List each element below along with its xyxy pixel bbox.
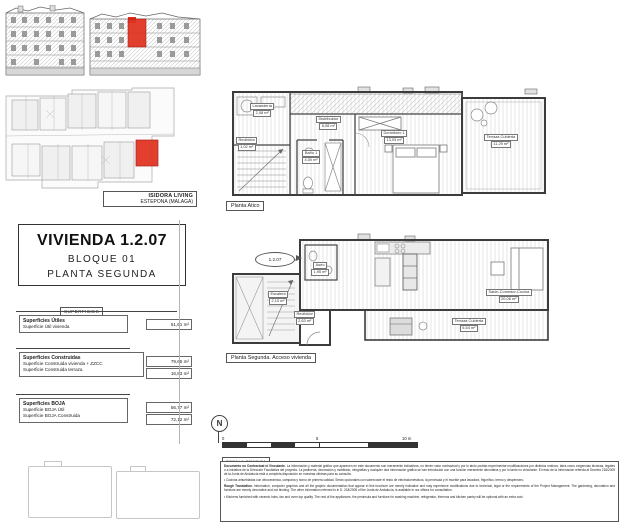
room-label-recibidor-atico: Recibidor 1,02 m² xyxy=(236,137,257,151)
room-area: 6,08 m² xyxy=(319,123,337,130)
room-name: Escalera xyxy=(268,291,288,298)
surfaces-group-construidas: Superficies Construidas Superficie Const… xyxy=(19,352,144,377)
room-area: 4,00 m² xyxy=(302,157,320,164)
room-area: 1,02 m² xyxy=(238,144,256,151)
room-name: Dormitorio 1 xyxy=(381,130,407,137)
divider xyxy=(16,394,130,395)
plan-segunda-drawing xyxy=(225,228,617,350)
value-util-vivienda: 51,61 m² xyxy=(146,319,192,330)
surfaces-group-boja: Superficies BOJA Superficie BOJA Útil Su… xyxy=(19,398,128,423)
room-name: Terraza Cubierta xyxy=(484,134,518,141)
value-boja-construida: 72,12 m² xyxy=(146,414,192,425)
room-area: 11,29 m² xyxy=(491,141,511,148)
project-label: ISIDORA LIVING ESTEPONA (MALAGA) xyxy=(103,191,197,207)
plan-sheet: ISIDORA LIVING ESTEPONA (MALAGA) VIVIEND… xyxy=(0,0,632,528)
key-plan-drawing xyxy=(2,86,202,196)
room-name: Recibidor xyxy=(294,311,315,318)
title-block: VIVIENDA 1.2.07 BLOQUE 01 PLANTA SEGUNDA xyxy=(18,224,186,286)
room-name: Distribuidor xyxy=(316,116,341,123)
block-title: BLOQUE 01 xyxy=(19,254,185,265)
unit-entry-marker: 1.2.07 xyxy=(255,252,295,267)
room-area: 1,95 m² xyxy=(311,269,329,276)
room-label-terraza-atico: Terraza Cubierta 11,29 m² xyxy=(484,134,518,148)
scale-tick-5: 5 xyxy=(316,436,318,441)
surfaces-group-utiles: Superficies Útiles Superficie Útil vivie… xyxy=(19,315,128,333)
room-label-terraza-segunda: Terraza Cubierta 5,54 m² xyxy=(452,318,486,332)
legal-es-bullet: • Cocinas amuebladas con vitrocerámica, … xyxy=(224,478,615,482)
facade-b xyxy=(90,13,200,75)
room-area: 2,63 m² xyxy=(296,318,314,325)
room-label-lavanderia: Lavandería 2,08 m² xyxy=(250,103,274,117)
building-elevations-drawing xyxy=(4,5,202,85)
room-label-bano1: Baño 1 4,00 m² xyxy=(302,150,320,164)
caption-planta-segunda: Planta Segunda. Acceso vivienda xyxy=(226,353,316,363)
value-construida-vivienda: 79,65 m² xyxy=(146,356,192,367)
room-label-recibidor-segunda: Recibidor 2,63 m² xyxy=(294,311,315,325)
room-label-salon: Salón-Comedor-Cocina 20,06 m² xyxy=(486,289,532,303)
scale-tick-10: 10 m xyxy=(402,436,411,441)
north-arrow-icon: N xyxy=(211,415,228,432)
row-label: Superficie BOJA Construida xyxy=(23,413,124,419)
room-area: 2,10 m² xyxy=(269,298,287,305)
row-label: Superficie Útil vivienda xyxy=(23,324,124,330)
room-area: 13,03 m² xyxy=(384,137,404,144)
value-construida-terraza: 16,83 m² xyxy=(146,368,192,379)
legal-es: Documento no Contractual ni Vinculante. … xyxy=(224,464,615,476)
room-label-distribuidor: Distribuidor 6,08 m² xyxy=(316,116,341,130)
legal-en: Rough Translation. Information, computer… xyxy=(224,484,615,492)
room-name: Recibidor xyxy=(236,137,257,144)
room-label-escalera: Escalera 2,10 m² xyxy=(268,291,288,305)
north-arrow-stem xyxy=(218,431,219,443)
caption-planta-atico: Planta Atico xyxy=(226,201,264,211)
floor-title: PLANTA SEGUNDA xyxy=(19,269,185,280)
room-name: Salón-Comedor-Cocina xyxy=(486,289,532,296)
room-name: Aseo xyxy=(313,262,327,269)
divider xyxy=(16,348,130,349)
legal-en-text: Information, computer graphics and all t… xyxy=(224,484,615,492)
room-name: Terraza Cubierta xyxy=(452,318,486,325)
room-name: Baño 1 xyxy=(302,150,319,157)
highlighted-unit-elevation xyxy=(128,19,146,47)
project-location: ESTEPONA (MALAGA) xyxy=(107,199,193,205)
room-label-aseo: Aseo 1,95 m² xyxy=(311,262,329,276)
stair-annex xyxy=(233,274,300,343)
value-boja-util: 56,77 m² xyxy=(146,402,192,413)
room-label-dormitorio1: Dormitorio 1 13,03 m² xyxy=(381,130,407,144)
scale-tick-0: 0 xyxy=(222,436,224,441)
thumbnail-drawing-1 xyxy=(28,466,112,518)
scale-bar-segments xyxy=(222,442,418,448)
divider xyxy=(16,311,177,312)
room-area: 5,54 m² xyxy=(460,325,478,332)
room-name: Lavandería xyxy=(250,103,274,110)
legal-en-bullet: • Kitchens furnished with ceramic hobs, … xyxy=(224,495,615,499)
column-divider xyxy=(179,220,180,444)
room-area: 20,06 m² xyxy=(499,296,519,303)
facade-a xyxy=(6,5,84,75)
scale-bar: 0 5 10 m ESCALA GRAFICA xyxy=(222,436,418,460)
room-area: 2,08 m² xyxy=(253,110,271,117)
row-label: Superficie Construida terraza xyxy=(23,367,140,373)
plan-atico-drawing xyxy=(225,85,617,213)
legal-notes: Documento no Contractual ni Vinculante. … xyxy=(220,461,619,522)
highlighted-unit-keyplan xyxy=(136,140,158,166)
entry-arrow-icon xyxy=(296,255,302,261)
thumbnail-drawing-2 xyxy=(116,471,200,519)
unit-title: VIVIENDA 1.2.07 xyxy=(19,232,185,250)
